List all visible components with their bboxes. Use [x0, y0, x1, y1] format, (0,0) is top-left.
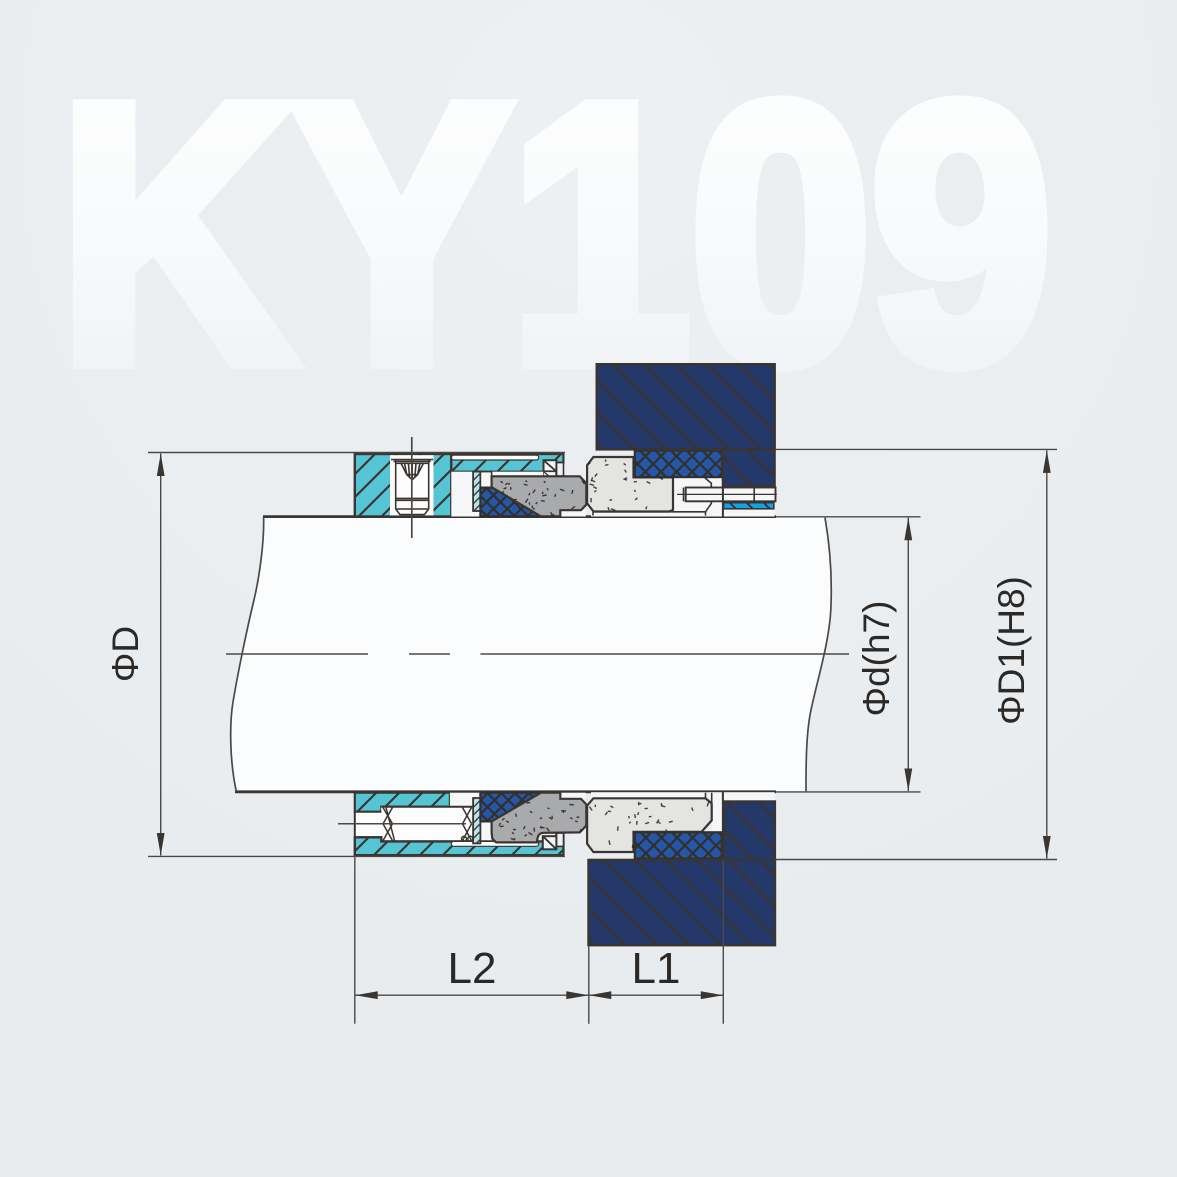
svg-text:L1: L1 [632, 944, 681, 993]
svg-text:Φd(h7): Φd(h7) [856, 601, 897, 717]
svg-text:L2: L2 [448, 944, 497, 993]
svg-text:ΦD1(H8): ΦD1(H8) [991, 576, 1032, 725]
svg-text:ΦD: ΦD [105, 626, 146, 682]
svg-text:KY109: KY109 [59, 30, 1052, 438]
